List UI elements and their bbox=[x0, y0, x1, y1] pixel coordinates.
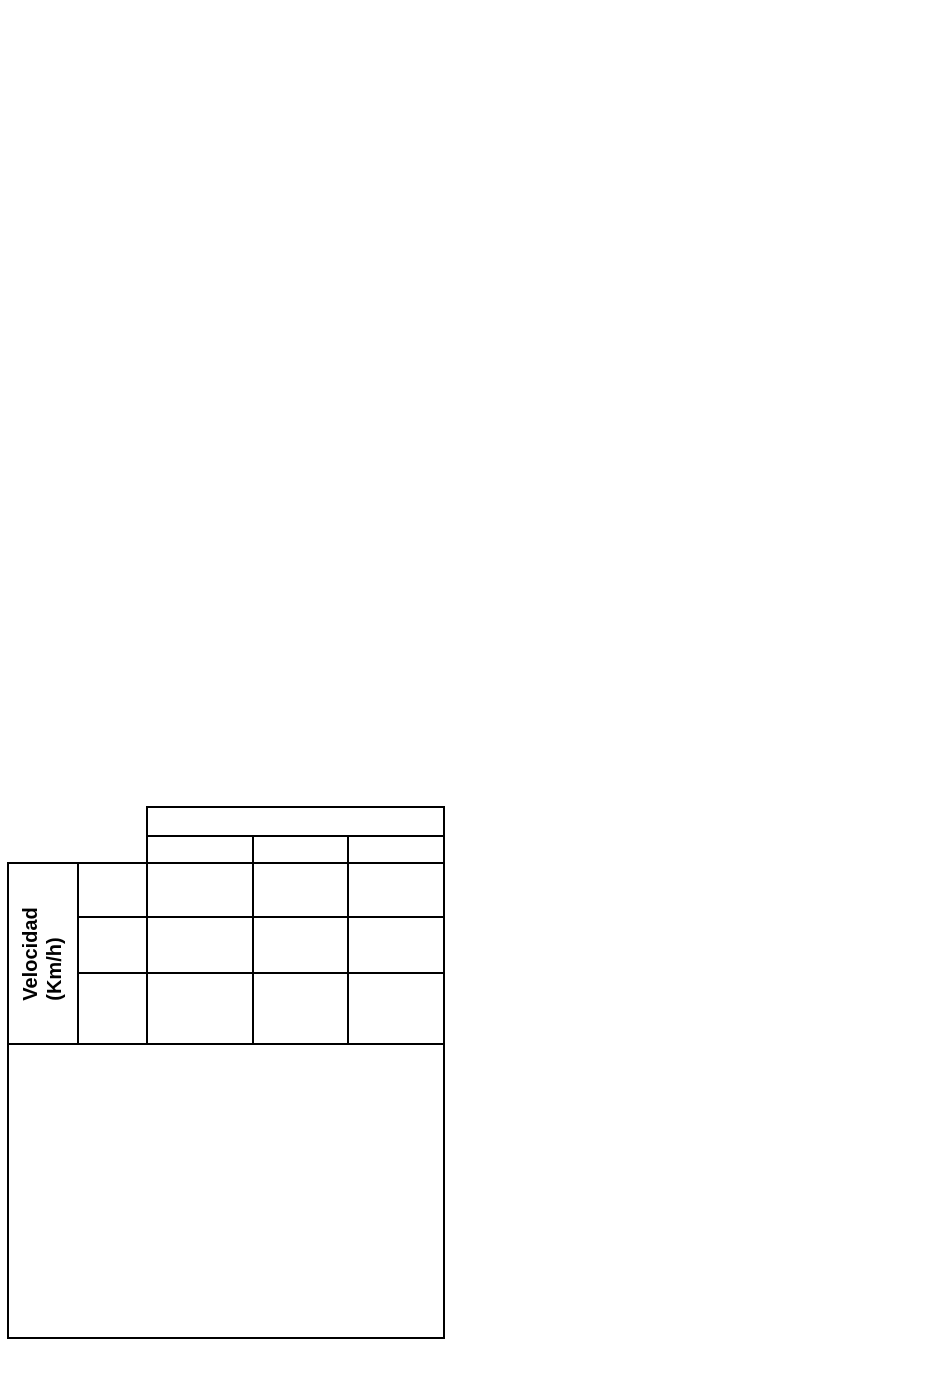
data-cell-r1c1 bbox=[147, 863, 253, 917]
spacer-cell bbox=[8, 836, 78, 863]
sub-header-cell-1 bbox=[147, 836, 253, 863]
velocity-label: Velocidad (Km/h) bbox=[19, 907, 67, 1000]
worksheet-page: Velocidad (Km/h) bbox=[0, 0, 950, 1399]
table-header-band bbox=[147, 807, 444, 836]
data-cell-r3c3 bbox=[348, 973, 444, 1044]
sub-header-cell-3 bbox=[348, 836, 444, 863]
velocity-label-line1: Velocidad bbox=[19, 907, 43, 1000]
data-cell-r1c3 bbox=[348, 863, 444, 917]
graph-area-box bbox=[8, 1044, 444, 1338]
spacer-cell bbox=[8, 807, 78, 836]
sub-header-cell-2 bbox=[253, 836, 348, 863]
data-cell-r2c3 bbox=[348, 917, 444, 973]
value-cell-2 bbox=[78, 917, 147, 973]
data-cell-r2c1 bbox=[147, 917, 253, 973]
data-cell-r2c2 bbox=[253, 917, 348, 973]
velocity-table: Velocidad (Km/h) bbox=[7, 806, 445, 1339]
spacer-cell bbox=[78, 836, 147, 863]
data-cell-r1c2 bbox=[253, 863, 348, 917]
value-cell-3 bbox=[78, 973, 147, 1044]
velocity-table-container: Velocidad (Km/h) bbox=[7, 806, 445, 1339]
spacer-cell bbox=[78, 807, 147, 836]
value-cell-1 bbox=[78, 863, 147, 917]
data-cell-r3c2 bbox=[253, 973, 348, 1044]
data-cell-r3c1 bbox=[147, 973, 253, 1044]
velocity-label-line2: (Km/h) bbox=[43, 907, 67, 1000]
velocity-label-cell: Velocidad (Km/h) bbox=[8, 863, 78, 1044]
